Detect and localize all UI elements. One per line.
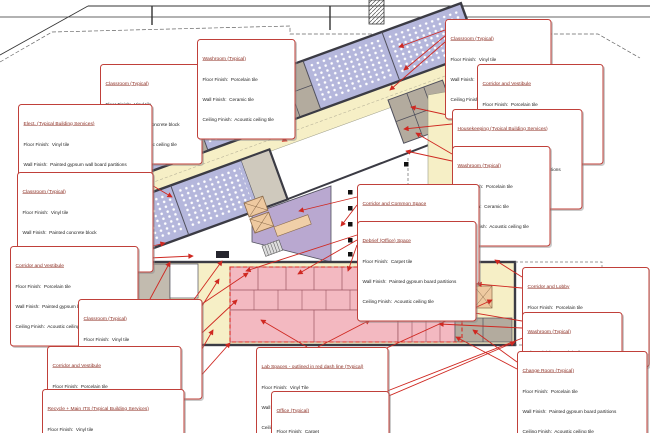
callout-floor-finish: Floor Finish: Carpet tile (363, 258, 472, 265)
callout-change-room: Change Room (Typical) Floor Finish: Porc… (517, 351, 648, 433)
callout-title: Classroom (Typical) (106, 80, 198, 87)
callout-floor-finish: Floor Finish: Porcelain tile (16, 283, 134, 290)
callout-title: Recycle + Main ITS (Typical Building Ser… (48, 405, 180, 412)
callout-floor-finish: Floor Finish: Porcelain tile (523, 388, 643, 395)
callout-title: Lab Spaces - outlined in red dash line (… (262, 363, 384, 370)
callout-ceiling-finish: Ceiling Finish: Acoustic ceiling tile (203, 116, 291, 123)
callout-wall-finish: Wall Finish: Painted gypsum board partit… (523, 408, 643, 415)
callout-title: Washroom (Typical) (203, 55, 291, 62)
callout-title: Classroom (Typical) (84, 315, 198, 322)
callout-floor-finish: Floor Finish: Vinyl tile (451, 56, 547, 63)
callout-wall-finish: Wall Finish: Painted gypsum wall board p… (24, 161, 148, 168)
callout-title: Washroom (Typical) (528, 328, 618, 335)
callout-recycle-main-its: Recycle + Main ITS (Typical Building Ser… (42, 389, 185, 433)
callout-title: Classroom (Typical) (451, 35, 547, 42)
callout-wall-finish: Wall Finish: Painted gypsum board partit… (363, 278, 472, 285)
callout-title: Classroom (Typical) (23, 188, 149, 195)
callout-title: Corridor and Common Space (363, 200, 475, 207)
callout-washroom-top: Washroom (Typical) Floor Finish: Porcela… (197, 39, 296, 140)
callout-title: Washroom (Typical) (458, 162, 546, 169)
callout-title: Elect. (Typical Building Services) (24, 120, 148, 127)
callout-title: Debrief (Office) Space (363, 237, 472, 244)
callout-floor-finish: Floor Finish: Porcelain tile (528, 304, 645, 311)
callout-office: Office (Typical) Floor Finish: Carpet Wa… (271, 391, 390, 433)
callout-debrief-office-space: Debrief (Office) Space Floor Finish: Car… (357, 221, 477, 322)
annotation-layer: Classroom (Typical) Floor Finish: Vinyl … (0, 0, 650, 433)
callout-ceiling-finish: Ceiling Finish: Acoustic ceiling tile (523, 428, 643, 433)
callout-wall-finish: Wall Finish: Ceramic tile (203, 96, 291, 103)
callout-title: Change Room (Typical) (523, 367, 643, 374)
callout-title: Corridor and Vestibule (53, 362, 177, 369)
callout-floor-finish: Floor Finish: Porcelain tile (203, 76, 291, 83)
callout-title: Corridor and Vestibule (16, 262, 134, 269)
callout-floor-finish: Floor Finish: Vinyl tile (23, 209, 149, 216)
callout-title: Corridor and Vestibule (483, 80, 599, 87)
callout-floor-finish: Floor Finish: Vinyl tile (48, 426, 180, 433)
callout-wall-finish: Wall Finish: Painted concrete block (23, 229, 149, 236)
floor-plan-sheet: Classroom (Typical) Floor Finish: Vinyl … (0, 0, 650, 433)
callout-floor-finish: Floor Finish: Porcelain tile (483, 101, 599, 108)
callout-ceiling-finish: Ceiling Finish: Acoustic ceiling tile (363, 298, 472, 305)
callout-floor-finish: Floor Finish: Vinyl tile (84, 336, 198, 343)
callout-title: Housekeeping (Typical Building Services) (458, 125, 578, 132)
callout-title: Corridor and Lobby (528, 283, 645, 290)
callout-floor-finish: Floor Finish: Vinyl Tile (262, 384, 384, 391)
callout-title: Office (Typical) (277, 407, 385, 414)
callout-floor-finish: Floor Finish: Carpet (277, 428, 385, 433)
callout-floor-finish: Floor Finish: Vinyl tile (24, 141, 148, 148)
